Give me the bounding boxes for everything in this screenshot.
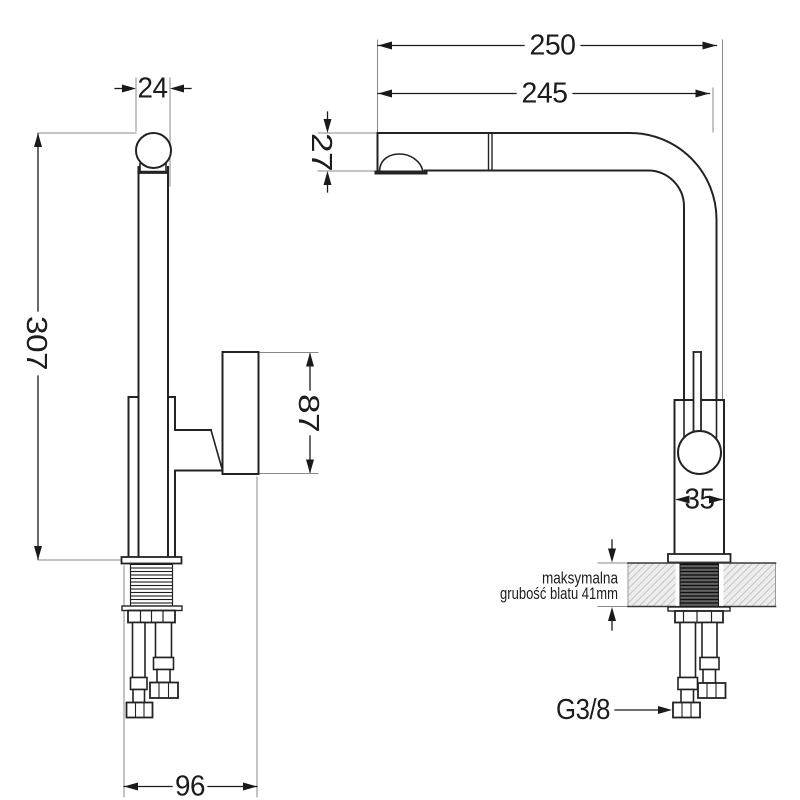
thread-size-label: G3/8 [556, 694, 610, 726]
dim-label-handle-height: 87 [292, 394, 324, 432]
dim-label-overall-depth: 250 [530, 30, 576, 62]
handle-connector [175, 430, 223, 471]
hose-right-front [698, 623, 726, 699]
aerator [377, 154, 426, 173]
base-flange-front [668, 554, 731, 563]
dim-label-base-width: 96 [175, 771, 205, 800]
front-view: 250 245 27 35 [305, 30, 776, 727]
side-view: 24 307 87 96 [20, 73, 324, 800]
hose-block [128, 611, 175, 623]
handle-ball [678, 431, 721, 474]
dim-label-spout-diameter: 24 [138, 73, 168, 105]
counter-note-line2: grubość blatu 41mm [500, 584, 618, 603]
hose-left [127, 623, 153, 718]
faucet-technical-drawing: 24 307 87 96 [0, 0, 800, 800]
handle-grip [223, 352, 259, 474]
dim-label-spout-height: 27 [305, 133, 337, 171]
side-view-faucet-outline [122, 133, 259, 718]
thread-size-leader [615, 706, 672, 714]
threaded-shank-front [680, 564, 719, 607]
front-view-extension-lines [318, 40, 723, 607]
spout-ball [136, 133, 171, 168]
hose-left-front [673, 623, 700, 718]
drawing-canvas: 24 307 87 96 [0, 0, 800, 800]
dim-label-total-height: 307 [20, 316, 52, 370]
hose-right [150, 623, 178, 699]
dim-label-body-width: 35 [685, 484, 715, 516]
front-view-faucet-outline [377, 133, 776, 718]
threaded-shank [131, 564, 173, 607]
dim-label-spout-reach: 245 [522, 78, 568, 110]
base-flange [122, 557, 182, 564]
hose-block-front [675, 611, 723, 623]
